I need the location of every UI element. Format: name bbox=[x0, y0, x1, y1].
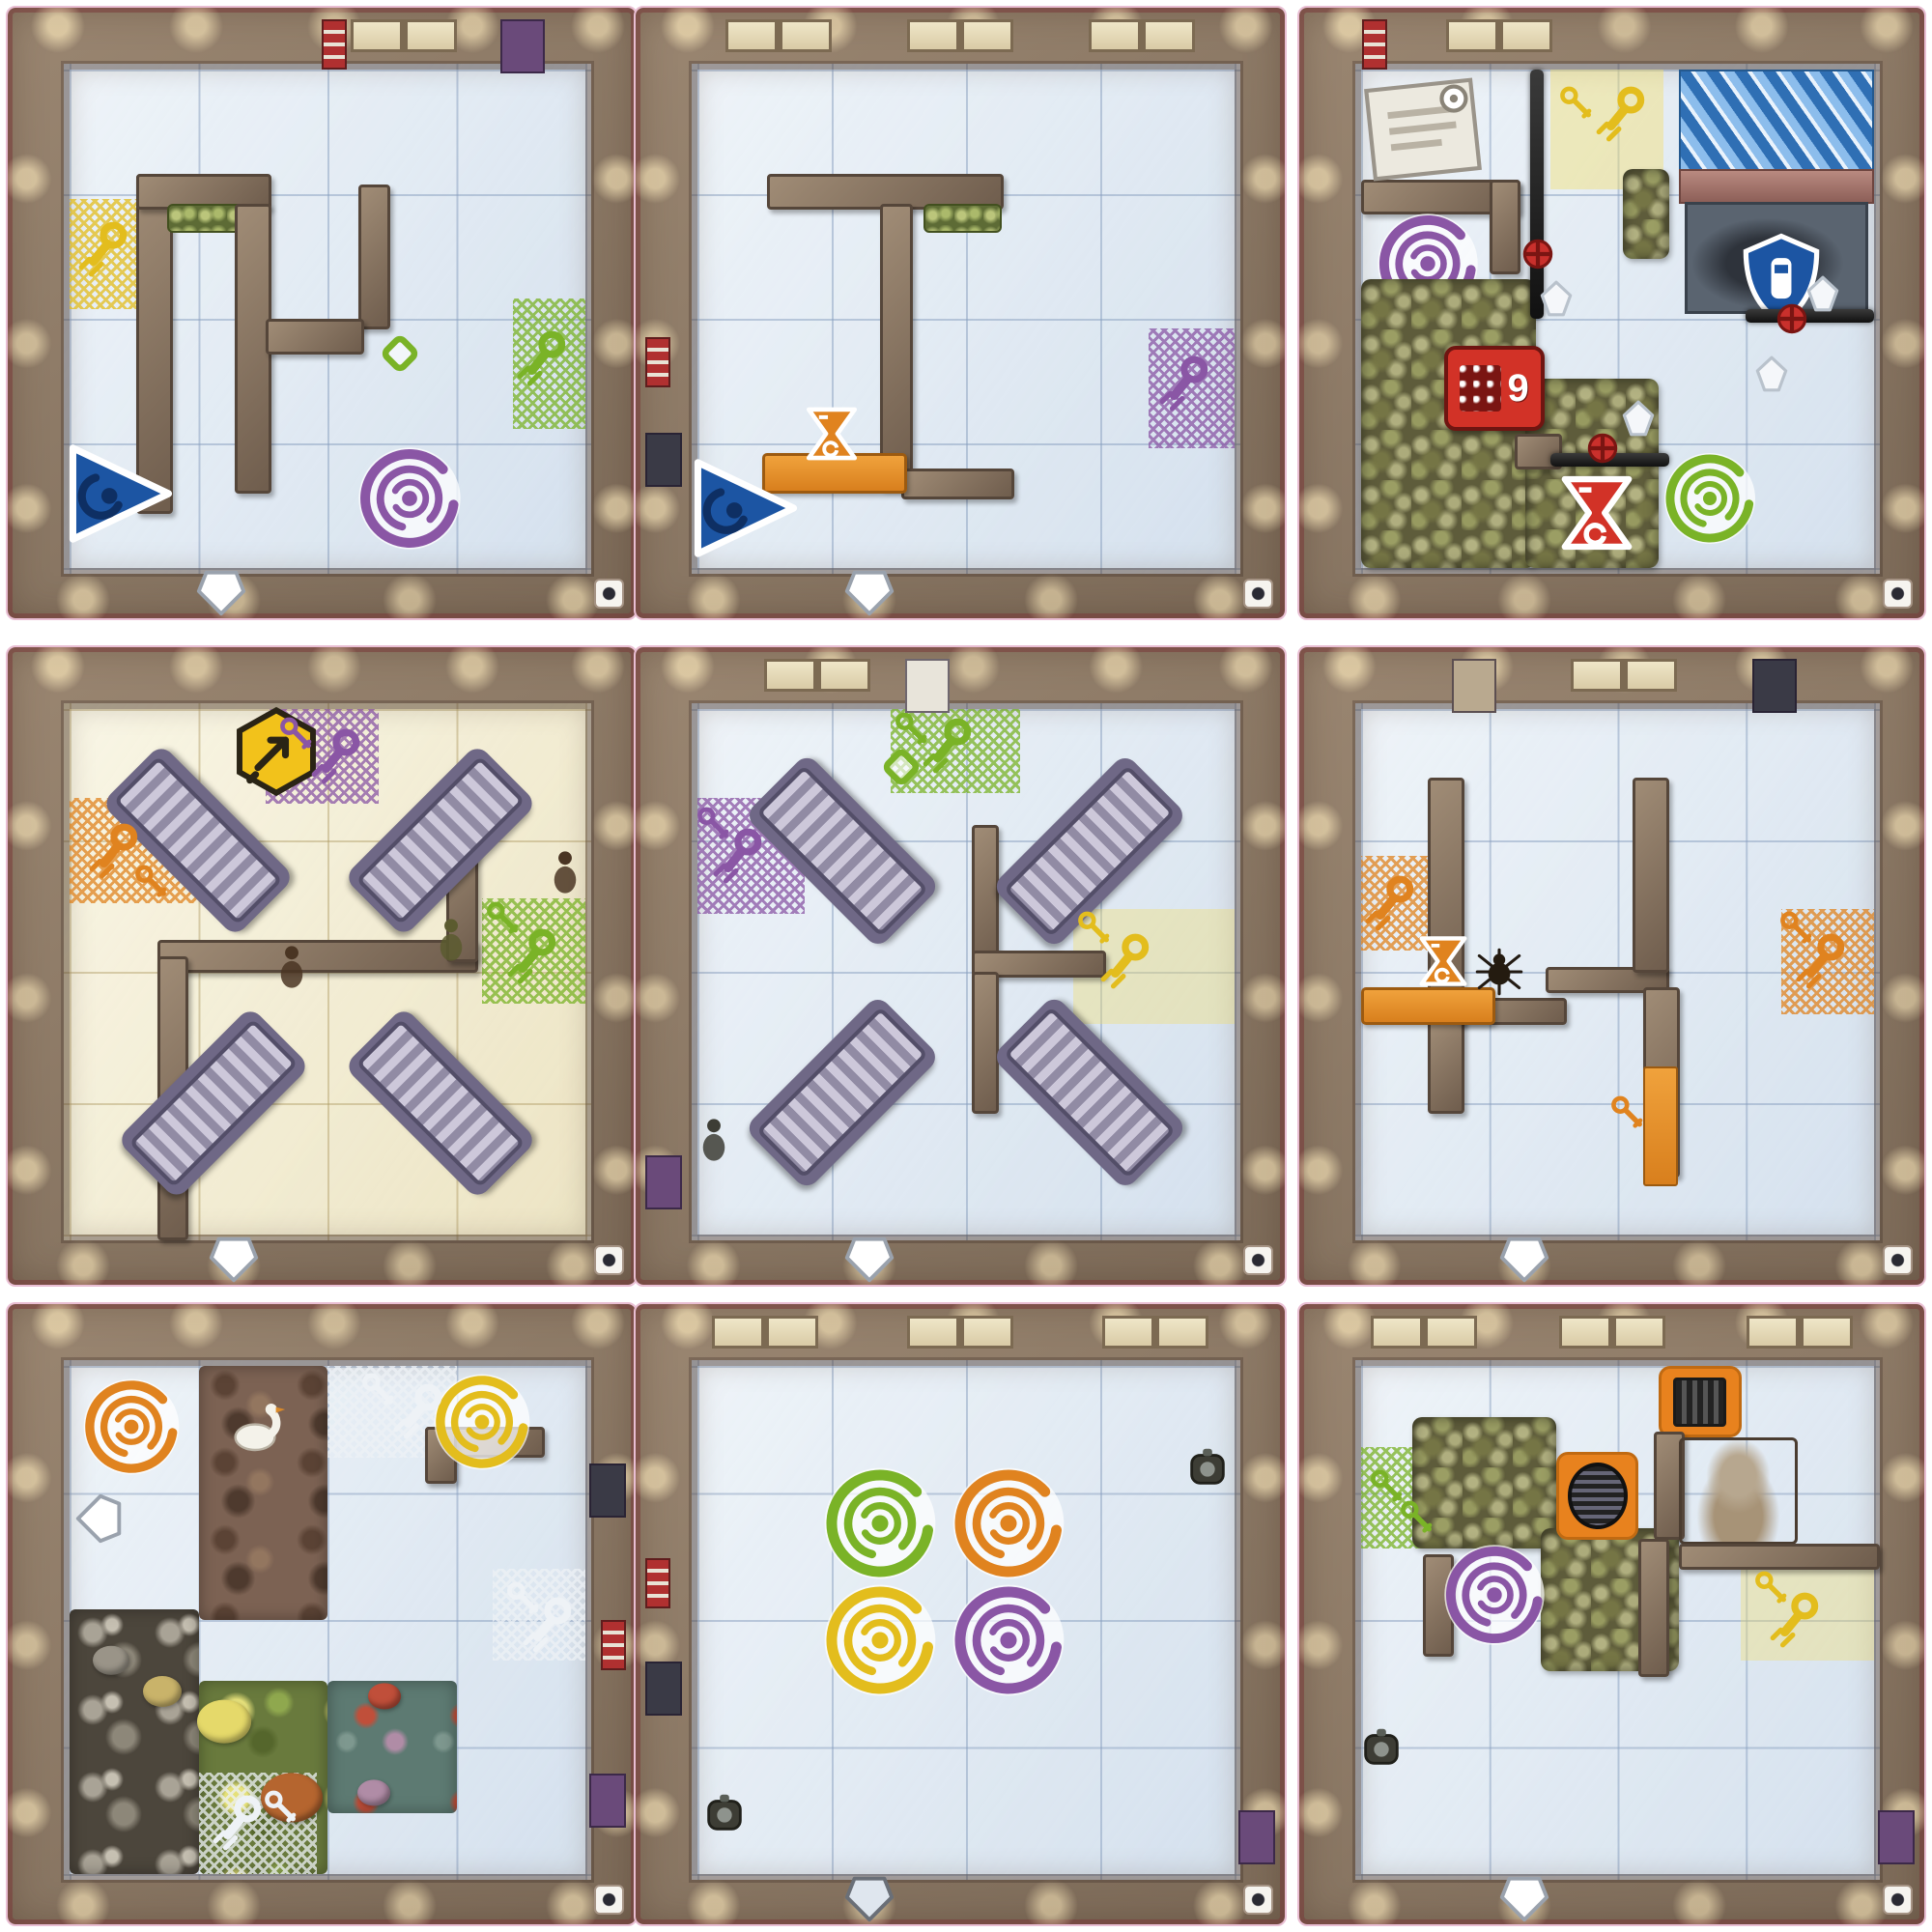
vortex-orange-icon bbox=[81, 1377, 183, 1478]
interior-wall bbox=[901, 469, 1014, 499]
keymag-green-icon bbox=[504, 926, 564, 986]
skylight-wall-decor bbox=[1102, 1316, 1208, 1349]
interior-wall bbox=[1633, 778, 1669, 973]
redsign-wall-decor bbox=[322, 19, 347, 70]
vortex-purple-icon bbox=[1441, 1542, 1548, 1648]
interior-wall bbox=[1428, 1019, 1464, 1114]
mall-game-board: 9 bbox=[0, 0, 1932, 1932]
tile-floor bbox=[1355, 1360, 1880, 1880]
tile-middle-center-escalator-tile bbox=[636, 647, 1285, 1285]
tile-number-badge bbox=[594, 1245, 624, 1275]
wdiamond-icon bbox=[1751, 354, 1792, 394]
wdiamond-icon bbox=[1536, 278, 1577, 319]
keymag-green-icon bbox=[514, 328, 574, 388]
hourglass-orange-icon bbox=[1413, 931, 1473, 991]
tile-middle-left-escalator-tile bbox=[8, 647, 636, 1285]
planter-box bbox=[167, 204, 243, 233]
tile-number-badge bbox=[594, 1885, 624, 1915]
interior-wall bbox=[1679, 1544, 1880, 1570]
tile-number-badge bbox=[1243, 1885, 1273, 1915]
keymag-white-icon bbox=[520, 1595, 580, 1655]
escalator-steps bbox=[356, 1018, 526, 1187]
escalator bbox=[117, 1007, 311, 1201]
skylight-wall-decor bbox=[712, 1316, 818, 1349]
tile-number-badge bbox=[1243, 579, 1273, 609]
vent-fan-grille bbox=[1568, 1463, 1628, 1529]
shopper-icon bbox=[540, 847, 590, 897]
tile-top-right-security-tile: 9 bbox=[1299, 8, 1924, 618]
poster-wall-decor bbox=[589, 1463, 626, 1518]
wdiamond-icon bbox=[1618, 398, 1659, 439]
skylight-wall-decor bbox=[1747, 1316, 1853, 1349]
shopper-icon bbox=[267, 942, 317, 992]
vortex-green-icon bbox=[1662, 450, 1758, 547]
interior-wall bbox=[1490, 180, 1521, 275]
robot-icon bbox=[1358, 1724, 1405, 1771]
skylight-wall-decor bbox=[764, 659, 870, 692]
keymag-purple-icon bbox=[308, 726, 368, 786]
skylight-wall-decor bbox=[1371, 1316, 1477, 1349]
skylight-wall-decor bbox=[725, 19, 832, 52]
food-item bbox=[357, 1779, 390, 1805]
keymag-yellow-icon bbox=[1097, 931, 1157, 991]
redsign-wall-decor bbox=[645, 337, 670, 387]
poster-wall-decor bbox=[589, 1774, 626, 1828]
shopper-icon bbox=[426, 915, 476, 965]
vortex-purple-icon bbox=[950, 1581, 1067, 1699]
poster-wall-decor bbox=[645, 1155, 682, 1209]
poster-wall-decor bbox=[645, 1662, 682, 1716]
exit-arrow-icon bbox=[206, 1230, 262, 1286]
kitchen-area bbox=[70, 1609, 199, 1874]
wheel-icon bbox=[1582, 428, 1623, 469]
keymag-yellow-icon bbox=[1593, 84, 1653, 144]
planter-box bbox=[923, 204, 1003, 233]
tile-floor bbox=[64, 703, 591, 1240]
tile-floor bbox=[64, 1360, 591, 1880]
vortex-orange-icon bbox=[950, 1464, 1067, 1582]
robot-icon bbox=[701, 1790, 748, 1836]
keypad-buttons bbox=[1460, 365, 1500, 412]
robot-icon bbox=[1184, 1444, 1231, 1491]
tile-top-left-mall-tile bbox=[8, 8, 636, 618]
vent-fan bbox=[1556, 1452, 1639, 1539]
tile-number-badge bbox=[1883, 579, 1913, 609]
redsign-wall-decor bbox=[645, 1558, 670, 1608]
interior-wall bbox=[880, 204, 913, 489]
poster-wall-decor bbox=[1452, 659, 1496, 713]
statue-niche bbox=[1679, 1437, 1798, 1545]
skylight-wall-decor bbox=[1571, 659, 1677, 692]
hedge-bush bbox=[1623, 169, 1669, 259]
escalator-steps bbox=[129, 1018, 298, 1187]
keyicon-white-icon bbox=[259, 1786, 303, 1831]
vent-grate bbox=[1659, 1366, 1742, 1437]
poster-wall-decor bbox=[1752, 659, 1797, 713]
skylight-wall-decor bbox=[907, 1316, 1013, 1349]
skylight-wall-decor bbox=[1559, 1316, 1665, 1349]
escalator bbox=[344, 1007, 538, 1201]
redsign-wall-decor bbox=[1362, 19, 1387, 70]
keymag-purple-icon bbox=[1156, 354, 1216, 413]
escalator-steps bbox=[1004, 1007, 1176, 1179]
tile-bottom-right-garden-tile bbox=[1299, 1304, 1924, 1924]
interior-wall bbox=[972, 972, 999, 1114]
tile-number-badge bbox=[1883, 1885, 1913, 1915]
exit-arrow-icon bbox=[72, 1491, 128, 1547]
vortex-purple-icon bbox=[355, 444, 464, 553]
diamond-green-icon bbox=[874, 740, 928, 794]
escalator bbox=[744, 994, 940, 1190]
escalator-steps bbox=[756, 1007, 928, 1179]
atrium-glass-roof bbox=[1679, 70, 1874, 174]
tile-floor bbox=[692, 703, 1240, 1240]
tile-bottom-center-start-tile bbox=[636, 1304, 1285, 1924]
skylight-wall-decor bbox=[1446, 19, 1552, 52]
skylight-wall-decor bbox=[351, 19, 457, 52]
tile-number-badge bbox=[594, 579, 624, 609]
spider-icon bbox=[1469, 942, 1529, 1002]
tile-number-badge bbox=[1883, 1245, 1913, 1275]
interior-wall bbox=[358, 185, 390, 329]
tile-floor bbox=[1355, 703, 1880, 1240]
vortex-yellow-icon bbox=[821, 1581, 939, 1699]
tile-middle-right-maze-tile bbox=[1299, 647, 1924, 1285]
redsign-wall-decor bbox=[601, 1620, 626, 1670]
keymag-orange-icon bbox=[1362, 873, 1422, 933]
alarm-keypad: 9 bbox=[1444, 346, 1545, 431]
poster-wall-decor bbox=[905, 659, 950, 713]
poster-wall-decor bbox=[1878, 1810, 1915, 1864]
poster-wall-decor bbox=[645, 433, 682, 487]
tile-floor: 9 bbox=[1355, 64, 1880, 574]
exit-arrow-icon bbox=[841, 563, 897, 619]
skylight-wall-decor bbox=[907, 19, 1013, 52]
goose-icon bbox=[226, 1392, 296, 1462]
exit-arrow-icon bbox=[841, 1869, 897, 1925]
tile-bottom-left-foodcourt-tile bbox=[8, 1304, 636, 1924]
keyicon-orange-icon bbox=[1605, 1092, 1650, 1136]
wdiamond-icon bbox=[1803, 273, 1843, 314]
exit-arrow-icon bbox=[1496, 1869, 1552, 1925]
exit-arrow-icon bbox=[193, 563, 249, 619]
mapposter-icon bbox=[1362, 69, 1483, 189]
interior-wall bbox=[266, 319, 364, 355]
camera-icon bbox=[689, 451, 803, 565]
keymag-yellow-icon bbox=[1767, 1590, 1827, 1650]
poster-wall-decor bbox=[500, 19, 545, 73]
keypad-digit: 9 bbox=[1508, 369, 1529, 408]
tile-floor bbox=[692, 1360, 1240, 1880]
exit-arrow-icon bbox=[841, 1230, 897, 1286]
tile-number-badge bbox=[1243, 1245, 1273, 1275]
keymag-yellow-icon bbox=[75, 219, 135, 279]
shopper-icon bbox=[689, 1115, 739, 1165]
hourglass-orange-icon bbox=[800, 402, 864, 466]
camera-icon bbox=[64, 437, 178, 551]
exit-arrow-icon bbox=[1496, 1230, 1552, 1286]
wheel-icon bbox=[1518, 234, 1558, 274]
tile-floor bbox=[64, 64, 591, 574]
hourglass-red-icon bbox=[1552, 469, 1641, 557]
interior-wall bbox=[972, 825, 999, 967]
keyicon-green-icon bbox=[1395, 1496, 1439, 1541]
keymag-orange-icon bbox=[1793, 931, 1853, 991]
keymag-white-icon bbox=[390, 1381, 450, 1441]
atrium-awning bbox=[1679, 169, 1874, 204]
food-item bbox=[143, 1676, 182, 1707]
keyicon-orange-icon bbox=[129, 861, 174, 905]
diamond-green-icon bbox=[373, 327, 427, 381]
food-item bbox=[368, 1683, 401, 1709]
vortex-green-icon bbox=[821, 1464, 939, 1582]
food-item bbox=[197, 1700, 251, 1744]
keymag-purple-icon bbox=[710, 826, 770, 886]
poster-wall-decor bbox=[1238, 1810, 1275, 1864]
vent-grate-grille bbox=[1673, 1378, 1726, 1427]
keymag-green-icon bbox=[920, 716, 980, 776]
skylight-wall-decor bbox=[1089, 19, 1195, 52]
tile-floor bbox=[692, 64, 1240, 574]
tile-top-middle-mall-tile bbox=[636, 8, 1285, 618]
interior-wall bbox=[1638, 1539, 1670, 1677]
